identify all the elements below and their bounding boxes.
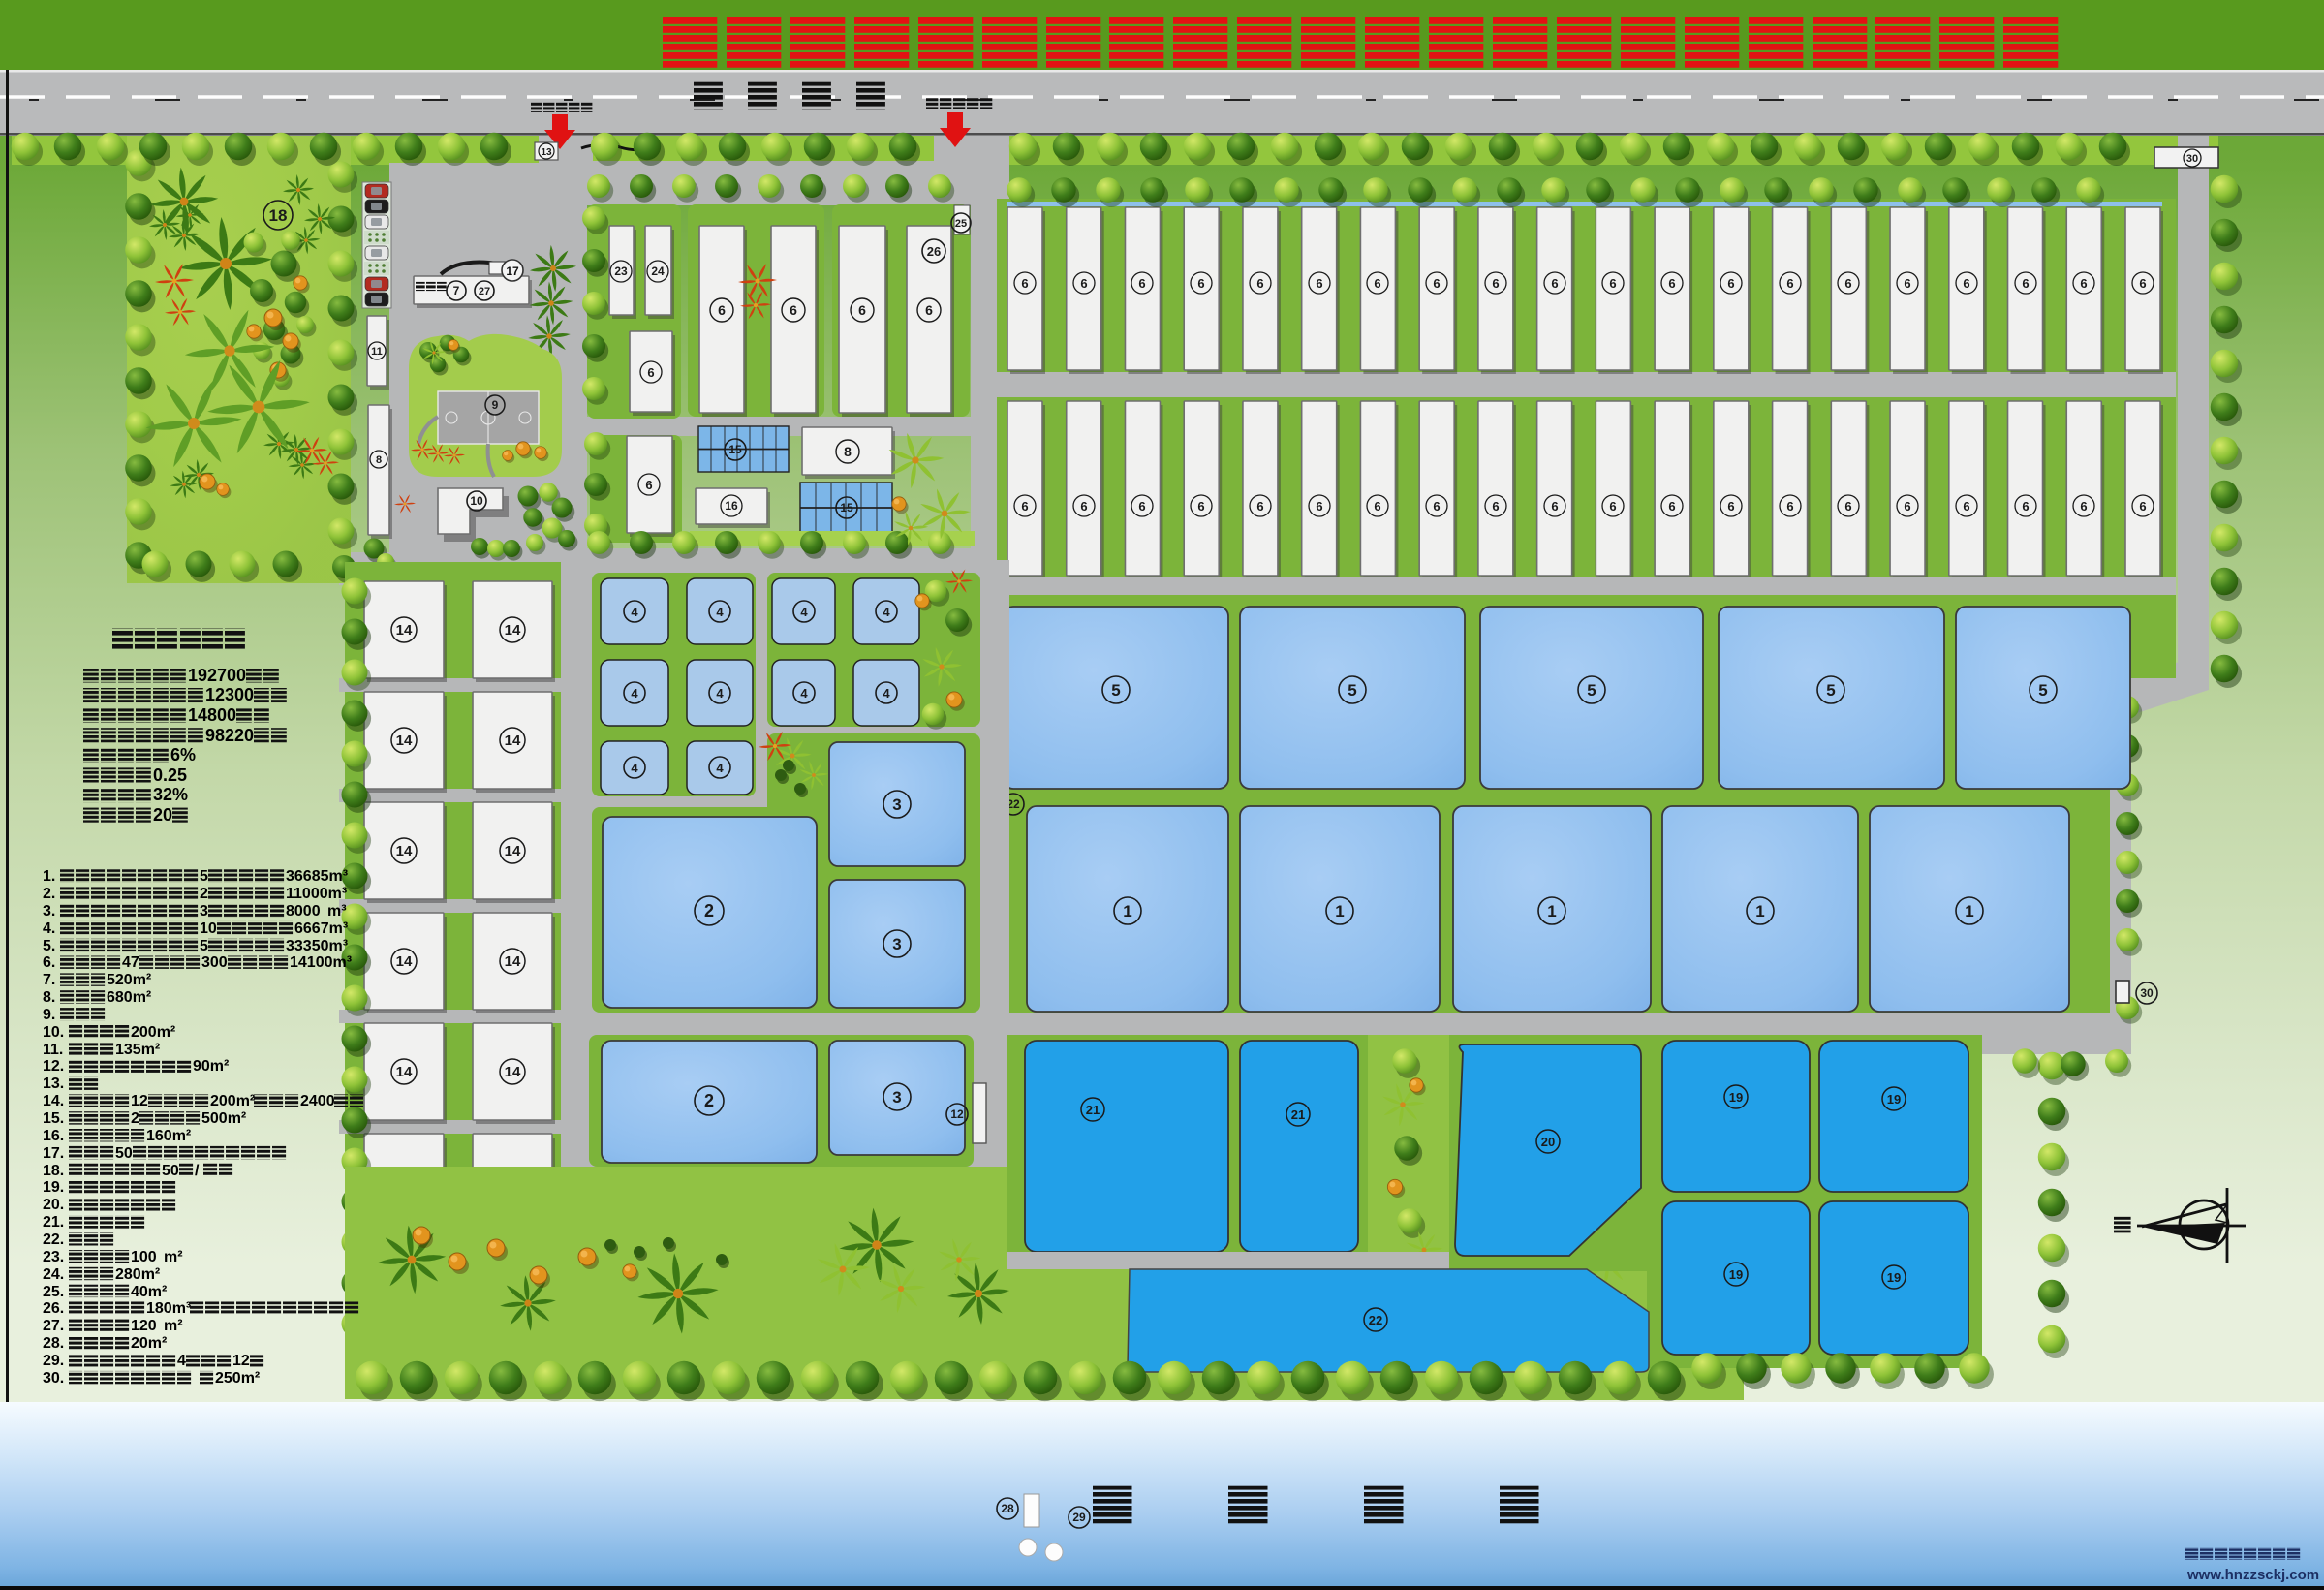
svg-text:6: 6 <box>1492 276 1499 291</box>
svg-text:120: 120 <box>131 1318 157 1334</box>
svg-text:192700: 192700 <box>188 666 246 685</box>
svg-text:17: 17 <box>506 265 519 278</box>
svg-text:200m²: 200m² <box>210 1093 255 1109</box>
svg-text:14.: 14. <box>43 1093 64 1109</box>
svg-text:6: 6 <box>1551 499 1558 514</box>
svg-text:6: 6 <box>1844 499 1851 514</box>
svg-text:14: 14 <box>396 733 413 749</box>
svg-text:4: 4 <box>716 761 724 775</box>
svg-text:3.: 3. <box>43 903 55 920</box>
svg-text:6: 6 <box>718 302 726 318</box>
svg-text:6: 6 <box>1138 276 1145 291</box>
svg-text:6: 6 <box>1904 499 1910 514</box>
svg-text:4: 4 <box>716 605 724 619</box>
svg-text:6: 6 <box>645 478 652 492</box>
svg-text:6: 6 <box>1668 276 1675 291</box>
svg-text:135m²: 135m² <box>115 1042 160 1058</box>
svg-text:14: 14 <box>505 1064 521 1080</box>
svg-text:9: 9 <box>492 398 499 412</box>
svg-text:24: 24 <box>651 265 665 278</box>
svg-text:6: 6 <box>2139 276 2146 291</box>
svg-text:6: 6 <box>1551 276 1558 291</box>
svg-text:4: 4 <box>631 761 638 775</box>
svg-text:4: 4 <box>883 686 890 701</box>
svg-text:24.: 24. <box>43 1266 64 1283</box>
svg-text:3: 3 <box>892 935 901 953</box>
svg-text:250m²: 250m² <box>215 1370 260 1387</box>
svg-text:m³: m³ <box>327 903 347 920</box>
svg-text:www.hnzzsckj.com: www.hnzzsckj.com <box>2186 1567 2319 1583</box>
svg-text:6: 6 <box>1786 276 1793 291</box>
svg-text:7: 7 <box>453 284 460 297</box>
svg-text:/: / <box>195 1163 200 1179</box>
svg-text:27: 27 <box>479 286 490 297</box>
svg-text:500m²: 500m² <box>201 1110 246 1127</box>
svg-text:4: 4 <box>800 686 808 701</box>
svg-text:5: 5 <box>1587 681 1596 700</box>
svg-text:5: 5 <box>200 938 208 954</box>
svg-text:3: 3 <box>200 903 208 920</box>
svg-text:6: 6 <box>1197 499 1204 514</box>
svg-text:25.: 25. <box>43 1284 64 1300</box>
svg-text:50: 50 <box>115 1145 133 1162</box>
svg-text:6: 6 <box>2022 499 2029 514</box>
svg-text:18: 18 <box>269 206 288 225</box>
svg-text:6: 6 <box>1021 276 1028 291</box>
svg-text:11: 11 <box>371 346 383 358</box>
svg-text:8: 8 <box>844 444 852 459</box>
svg-text:4.: 4. <box>43 920 55 937</box>
svg-text:6: 6 <box>1668 499 1675 514</box>
svg-text:20m²: 20m² <box>131 1335 167 1352</box>
svg-text:6: 6 <box>1316 276 1322 291</box>
svg-text:21: 21 <box>1086 1103 1100 1117</box>
svg-text:4: 4 <box>883 605 890 619</box>
svg-text:2: 2 <box>200 886 208 902</box>
svg-text:6: 6 <box>1374 499 1380 514</box>
svg-text:6: 6 <box>1433 499 1440 514</box>
svg-text:30: 30 <box>2186 153 2198 165</box>
svg-text:12.: 12. <box>43 1058 64 1075</box>
svg-text:6: 6 <box>1080 499 1087 514</box>
svg-text:6: 6 <box>925 302 933 318</box>
svg-text:10: 10 <box>200 920 217 937</box>
svg-text:16.: 16. <box>43 1128 64 1144</box>
svg-text:0.25: 0.25 <box>153 765 187 785</box>
svg-text:6: 6 <box>1727 276 1734 291</box>
svg-text:15.: 15. <box>43 1110 64 1127</box>
svg-text:22.: 22. <box>43 1231 64 1248</box>
svg-text:13.: 13. <box>43 1076 64 1092</box>
svg-text:36685m³: 36685m³ <box>286 868 348 885</box>
svg-text:16: 16 <box>725 499 738 513</box>
svg-text:6: 6 <box>1433 276 1440 291</box>
svg-text:10.: 10. <box>43 1024 64 1041</box>
svg-text:14800: 14800 <box>188 705 236 725</box>
svg-text:5.: 5. <box>43 938 55 954</box>
svg-text:1: 1 <box>1123 902 1131 920</box>
svg-text:6: 6 <box>1609 276 1616 291</box>
svg-text:6: 6 <box>2139 499 2146 514</box>
svg-text:6: 6 <box>1727 499 1734 514</box>
svg-text:32%: 32% <box>153 785 188 804</box>
svg-text:5: 5 <box>1111 681 1120 700</box>
svg-text:5: 5 <box>200 868 208 885</box>
svg-text:47: 47 <box>122 954 139 971</box>
svg-text:14: 14 <box>396 622 413 639</box>
svg-text:6: 6 <box>1138 499 1145 514</box>
svg-text:13: 13 <box>541 147 552 158</box>
svg-text:20: 20 <box>1541 1135 1555 1149</box>
svg-text:6: 6 <box>1256 499 1263 514</box>
svg-text:14: 14 <box>505 843 521 859</box>
svg-text:26.: 26. <box>43 1300 64 1317</box>
svg-text:21.: 21. <box>43 1214 64 1231</box>
svg-text:14100m³: 14100m³ <box>290 954 352 971</box>
svg-text:18.: 18. <box>43 1163 64 1179</box>
svg-text:6: 6 <box>2080 276 2087 291</box>
svg-text:6: 6 <box>1786 499 1793 514</box>
svg-text:14: 14 <box>505 953 521 970</box>
svg-text:1: 1 <box>1335 902 1344 920</box>
svg-text:12: 12 <box>232 1353 250 1369</box>
svg-text:17.: 17. <box>43 1145 64 1162</box>
svg-text:12: 12 <box>131 1093 148 1109</box>
svg-text:15: 15 <box>840 501 853 514</box>
svg-text:2: 2 <box>131 1110 139 1127</box>
svg-text:22: 22 <box>1369 1313 1382 1327</box>
svg-text:2400: 2400 <box>300 1093 335 1109</box>
svg-text:90m²: 90m² <box>193 1058 229 1075</box>
svg-text:6: 6 <box>1963 499 1969 514</box>
svg-text:27.: 27. <box>43 1318 64 1334</box>
svg-text:40m²: 40m² <box>131 1284 167 1300</box>
svg-text:28.: 28. <box>43 1335 64 1352</box>
svg-text:15: 15 <box>728 443 742 456</box>
svg-text:19: 19 <box>1729 1267 1743 1282</box>
svg-text:1: 1 <box>1755 902 1764 920</box>
svg-text:2.: 2. <box>43 886 55 902</box>
svg-text:5: 5 <box>2038 681 2047 700</box>
svg-text:200m²: 200m² <box>131 1024 175 1041</box>
svg-text:9.: 9. <box>43 1007 55 1023</box>
svg-text:6: 6 <box>790 302 797 318</box>
svg-text:14: 14 <box>505 622 521 639</box>
svg-text:14: 14 <box>505 733 521 749</box>
svg-text:7.: 7. <box>43 972 55 988</box>
svg-text:11000m³: 11000m³ <box>286 886 347 902</box>
svg-text:19.: 19. <box>43 1179 64 1196</box>
svg-text:4: 4 <box>800 605 808 619</box>
svg-text:5: 5 <box>1348 681 1356 700</box>
svg-text:20.: 20. <box>43 1197 64 1213</box>
svg-text:6667m³: 6667m³ <box>294 920 348 937</box>
svg-text:5: 5 <box>1826 681 1835 700</box>
svg-text:98220: 98220 <box>205 726 254 745</box>
svg-text:6: 6 <box>1844 276 1851 291</box>
svg-text:680m²: 680m² <box>107 989 151 1006</box>
svg-text:6.: 6. <box>43 954 55 971</box>
svg-text:300: 300 <box>201 954 228 971</box>
svg-text:23: 23 <box>614 265 628 278</box>
svg-text:2: 2 <box>704 901 714 920</box>
svg-text:1: 1 <box>1965 902 1973 920</box>
svg-text:6: 6 <box>1021 499 1028 514</box>
svg-text:11.: 11. <box>43 1042 63 1058</box>
svg-text:19: 19 <box>1729 1090 1743 1105</box>
svg-text:m²: m² <box>164 1318 183 1334</box>
svg-text:4: 4 <box>631 605 638 619</box>
svg-text:6%: 6% <box>170 745 196 764</box>
svg-text:6: 6 <box>1197 276 1204 291</box>
svg-text:8.: 8. <box>43 989 55 1006</box>
svg-text:10: 10 <box>470 494 483 508</box>
svg-text:1.: 1. <box>43 868 55 885</box>
svg-text:6: 6 <box>1492 499 1499 514</box>
svg-text:6: 6 <box>1904 276 1910 291</box>
svg-text:28: 28 <box>1001 1502 1014 1515</box>
svg-text:8: 8 <box>376 454 382 466</box>
svg-text:14: 14 <box>396 953 413 970</box>
svg-text:12: 12 <box>950 1107 964 1121</box>
svg-text:6: 6 <box>2080 499 2087 514</box>
svg-text:4: 4 <box>716 686 724 701</box>
svg-text:6: 6 <box>647 365 654 380</box>
svg-text:30: 30 <box>2140 986 2154 1000</box>
svg-text:4: 4 <box>177 1353 186 1369</box>
svg-text:100: 100 <box>131 1249 157 1265</box>
svg-text:6: 6 <box>2022 276 2029 291</box>
svg-text:29: 29 <box>1072 1511 1086 1524</box>
svg-text:6: 6 <box>1256 276 1263 291</box>
svg-text:20: 20 <box>153 805 172 825</box>
svg-text:280m²: 280m² <box>115 1266 160 1283</box>
svg-text:160m²: 160m² <box>146 1128 191 1144</box>
svg-text:50: 50 <box>162 1163 179 1179</box>
svg-text:6: 6 <box>1316 499 1322 514</box>
svg-text:3: 3 <box>892 1088 901 1107</box>
svg-text:6: 6 <box>1609 499 1616 514</box>
svg-text:2: 2 <box>704 1091 714 1110</box>
svg-text:23.: 23. <box>43 1249 64 1265</box>
svg-text:12300: 12300 <box>205 685 254 704</box>
svg-text:25: 25 <box>955 218 967 230</box>
svg-text:8000: 8000 <box>286 903 321 920</box>
svg-text:m²: m² <box>164 1249 183 1265</box>
svg-text:30.: 30. <box>43 1370 64 1387</box>
svg-text:29.: 29. <box>43 1353 64 1369</box>
svg-text:1: 1 <box>1547 902 1556 920</box>
svg-text:21: 21 <box>1291 1107 1305 1122</box>
svg-text:6: 6 <box>1080 276 1087 291</box>
svg-text:180m³: 180m³ <box>146 1300 191 1317</box>
svg-text:520m²: 520m² <box>107 972 151 988</box>
svg-text:19: 19 <box>1887 1092 1901 1107</box>
svg-text:33350m³: 33350m³ <box>286 938 348 954</box>
svg-text:6: 6 <box>858 302 866 318</box>
svg-text:14: 14 <box>396 843 413 859</box>
svg-text:3: 3 <box>892 795 901 814</box>
svg-text:14: 14 <box>396 1064 413 1080</box>
svg-text:4: 4 <box>631 686 638 701</box>
svg-text:6: 6 <box>1374 276 1380 291</box>
svg-text:26: 26 <box>927 244 941 259</box>
svg-text:19: 19 <box>1887 1270 1901 1285</box>
svg-text:6: 6 <box>1963 276 1969 291</box>
